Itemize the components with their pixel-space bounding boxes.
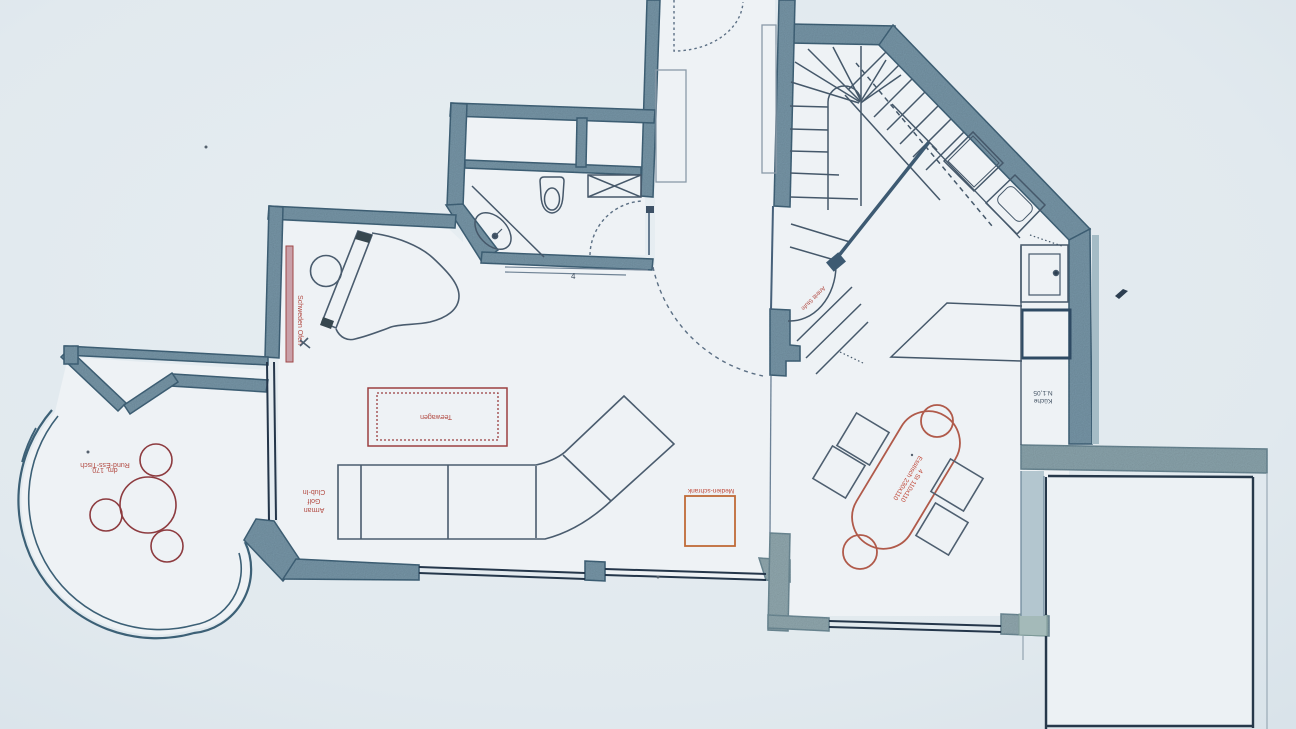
svg-text:4: 4	[571, 272, 576, 281]
svg-text:Arman: Arman	[304, 506, 325, 513]
svg-text:Teewagen: Teewagen	[420, 413, 452, 420]
svg-text:Medien-schrank: Medien-schrank	[687, 487, 734, 494]
svg-text:N.1,05: N.1,05	[1033, 389, 1053, 396]
svg-text:dm. 170: dm. 170	[92, 466, 117, 473]
svg-text:Club-In: Club-In	[303, 488, 326, 495]
svg-text:Küche: Küche	[1033, 397, 1052, 404]
svg-text:Golf: Golf	[308, 497, 321, 504]
svg-text:Schweden Ofen: Schweden Ofen	[296, 295, 303, 345]
